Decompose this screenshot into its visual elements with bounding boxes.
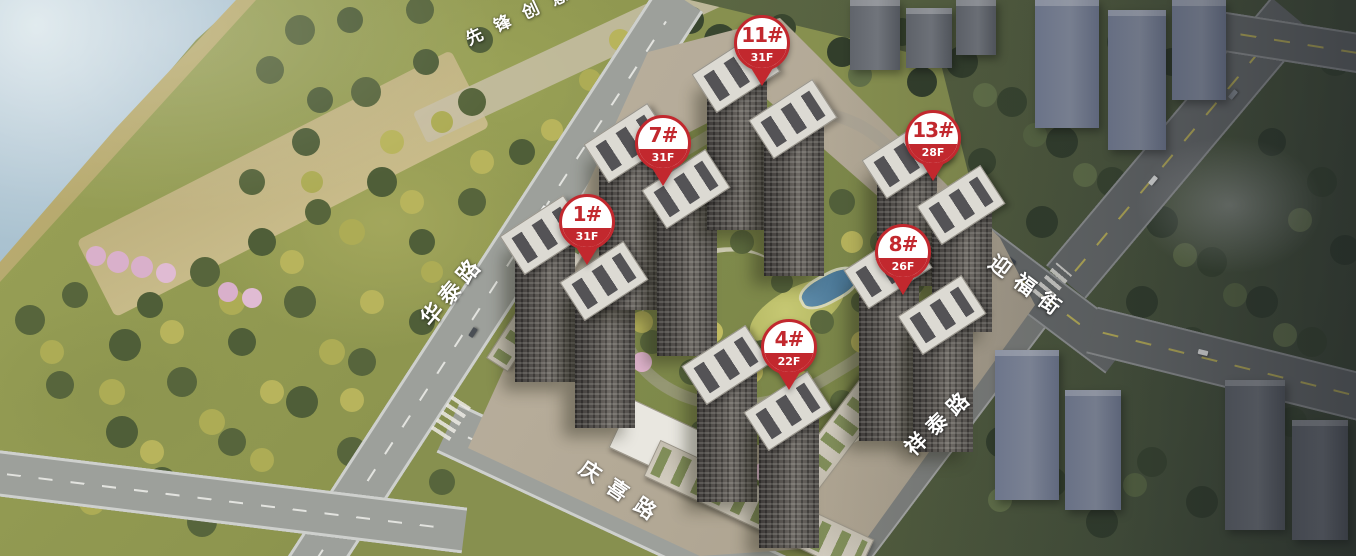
pin-floor-count: 31F: [638, 149, 688, 168]
building-pin-4[interactable]: 4# 22F: [761, 319, 817, 390]
pin-circle: 4# 22F: [761, 319, 817, 375]
pin-floor-count: 31F: [562, 228, 612, 247]
pin-circle: 7# 31F: [635, 115, 691, 171]
pin-floor-count: 28F: [908, 144, 958, 163]
pin-building-number: 8#: [878, 227, 928, 258]
pin-circle: 8# 26F: [875, 224, 931, 280]
pin-circle: 11# 31F: [734, 15, 790, 71]
pin-building-number: 1#: [562, 197, 612, 228]
pin-tip-icon: [778, 372, 800, 390]
pin-floor-count: 22F: [764, 353, 814, 372]
building-pin-11[interactable]: 11# 31F: [734, 15, 790, 86]
building-pin-8[interactable]: 8# 26F: [875, 224, 931, 295]
pin-floor-count: 31F: [737, 49, 787, 68]
pin-tip-icon: [892, 277, 914, 295]
pin-tip-icon: [576, 247, 598, 265]
building-pin-1[interactable]: 1# 31F: [559, 194, 615, 265]
tower-11b: [755, 96, 831, 276]
pin-circle: 13# 28F: [905, 110, 961, 166]
pin-building-number: 4#: [764, 322, 814, 353]
pin-building-number: 13#: [908, 113, 958, 144]
pin-circle: 1# 31F: [559, 194, 615, 250]
tower-1b: [566, 258, 642, 428]
pin-building-number: 7#: [638, 118, 688, 149]
aerial-site-map: 先锋创意华泰路迎福街祥泰路庆喜路 11# 31F 7# 31F 13# 28F …: [0, 0, 1356, 556]
pin-tip-icon: [751, 68, 773, 86]
tower-4b: [750, 388, 826, 548]
building-pin-7[interactable]: 7# 31F: [635, 115, 691, 186]
building-pin-13[interactable]: 13# 28F: [905, 110, 961, 181]
pin-tip-icon: [922, 163, 944, 181]
tower-7b: [648, 166, 724, 356]
pin-building-number: 11#: [737, 18, 787, 49]
pin-tip-icon: [652, 168, 674, 186]
pin-floor-count: 26F: [878, 258, 928, 277]
